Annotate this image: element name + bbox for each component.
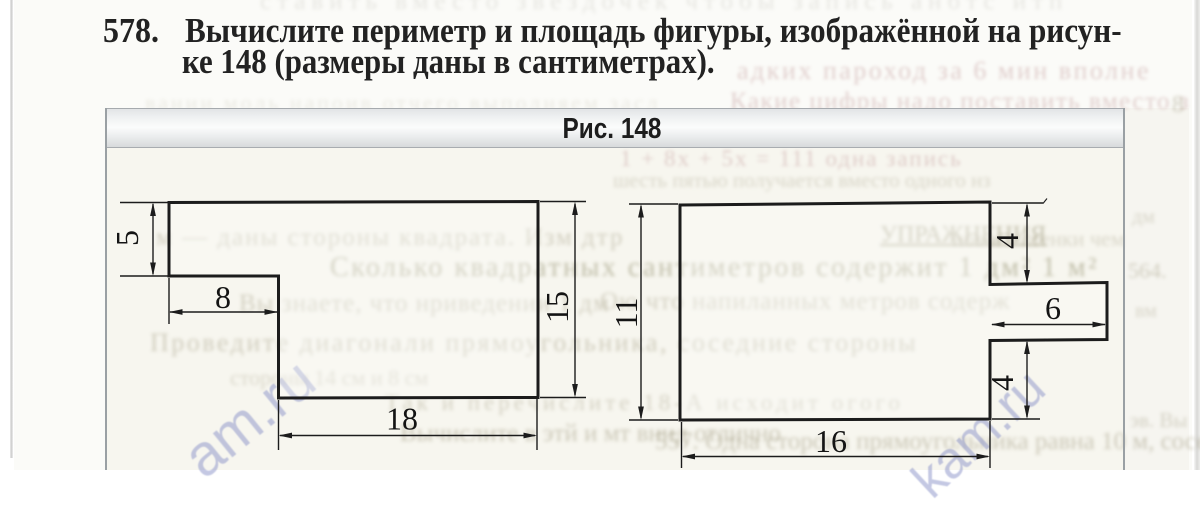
svg-text:4: 4 [984,375,1020,391]
svg-text:6: 6 [1045,290,1061,326]
svg-text:18: 18 [386,401,418,437]
svg-text:4: 4 [989,233,1025,249]
svg-text:15: 15 [539,291,575,323]
svg-text:5: 5 [109,230,145,246]
svg-text:8: 8 [215,279,231,315]
svg-text:11: 11 [608,298,644,329]
svg-text:16: 16 [815,423,847,459]
